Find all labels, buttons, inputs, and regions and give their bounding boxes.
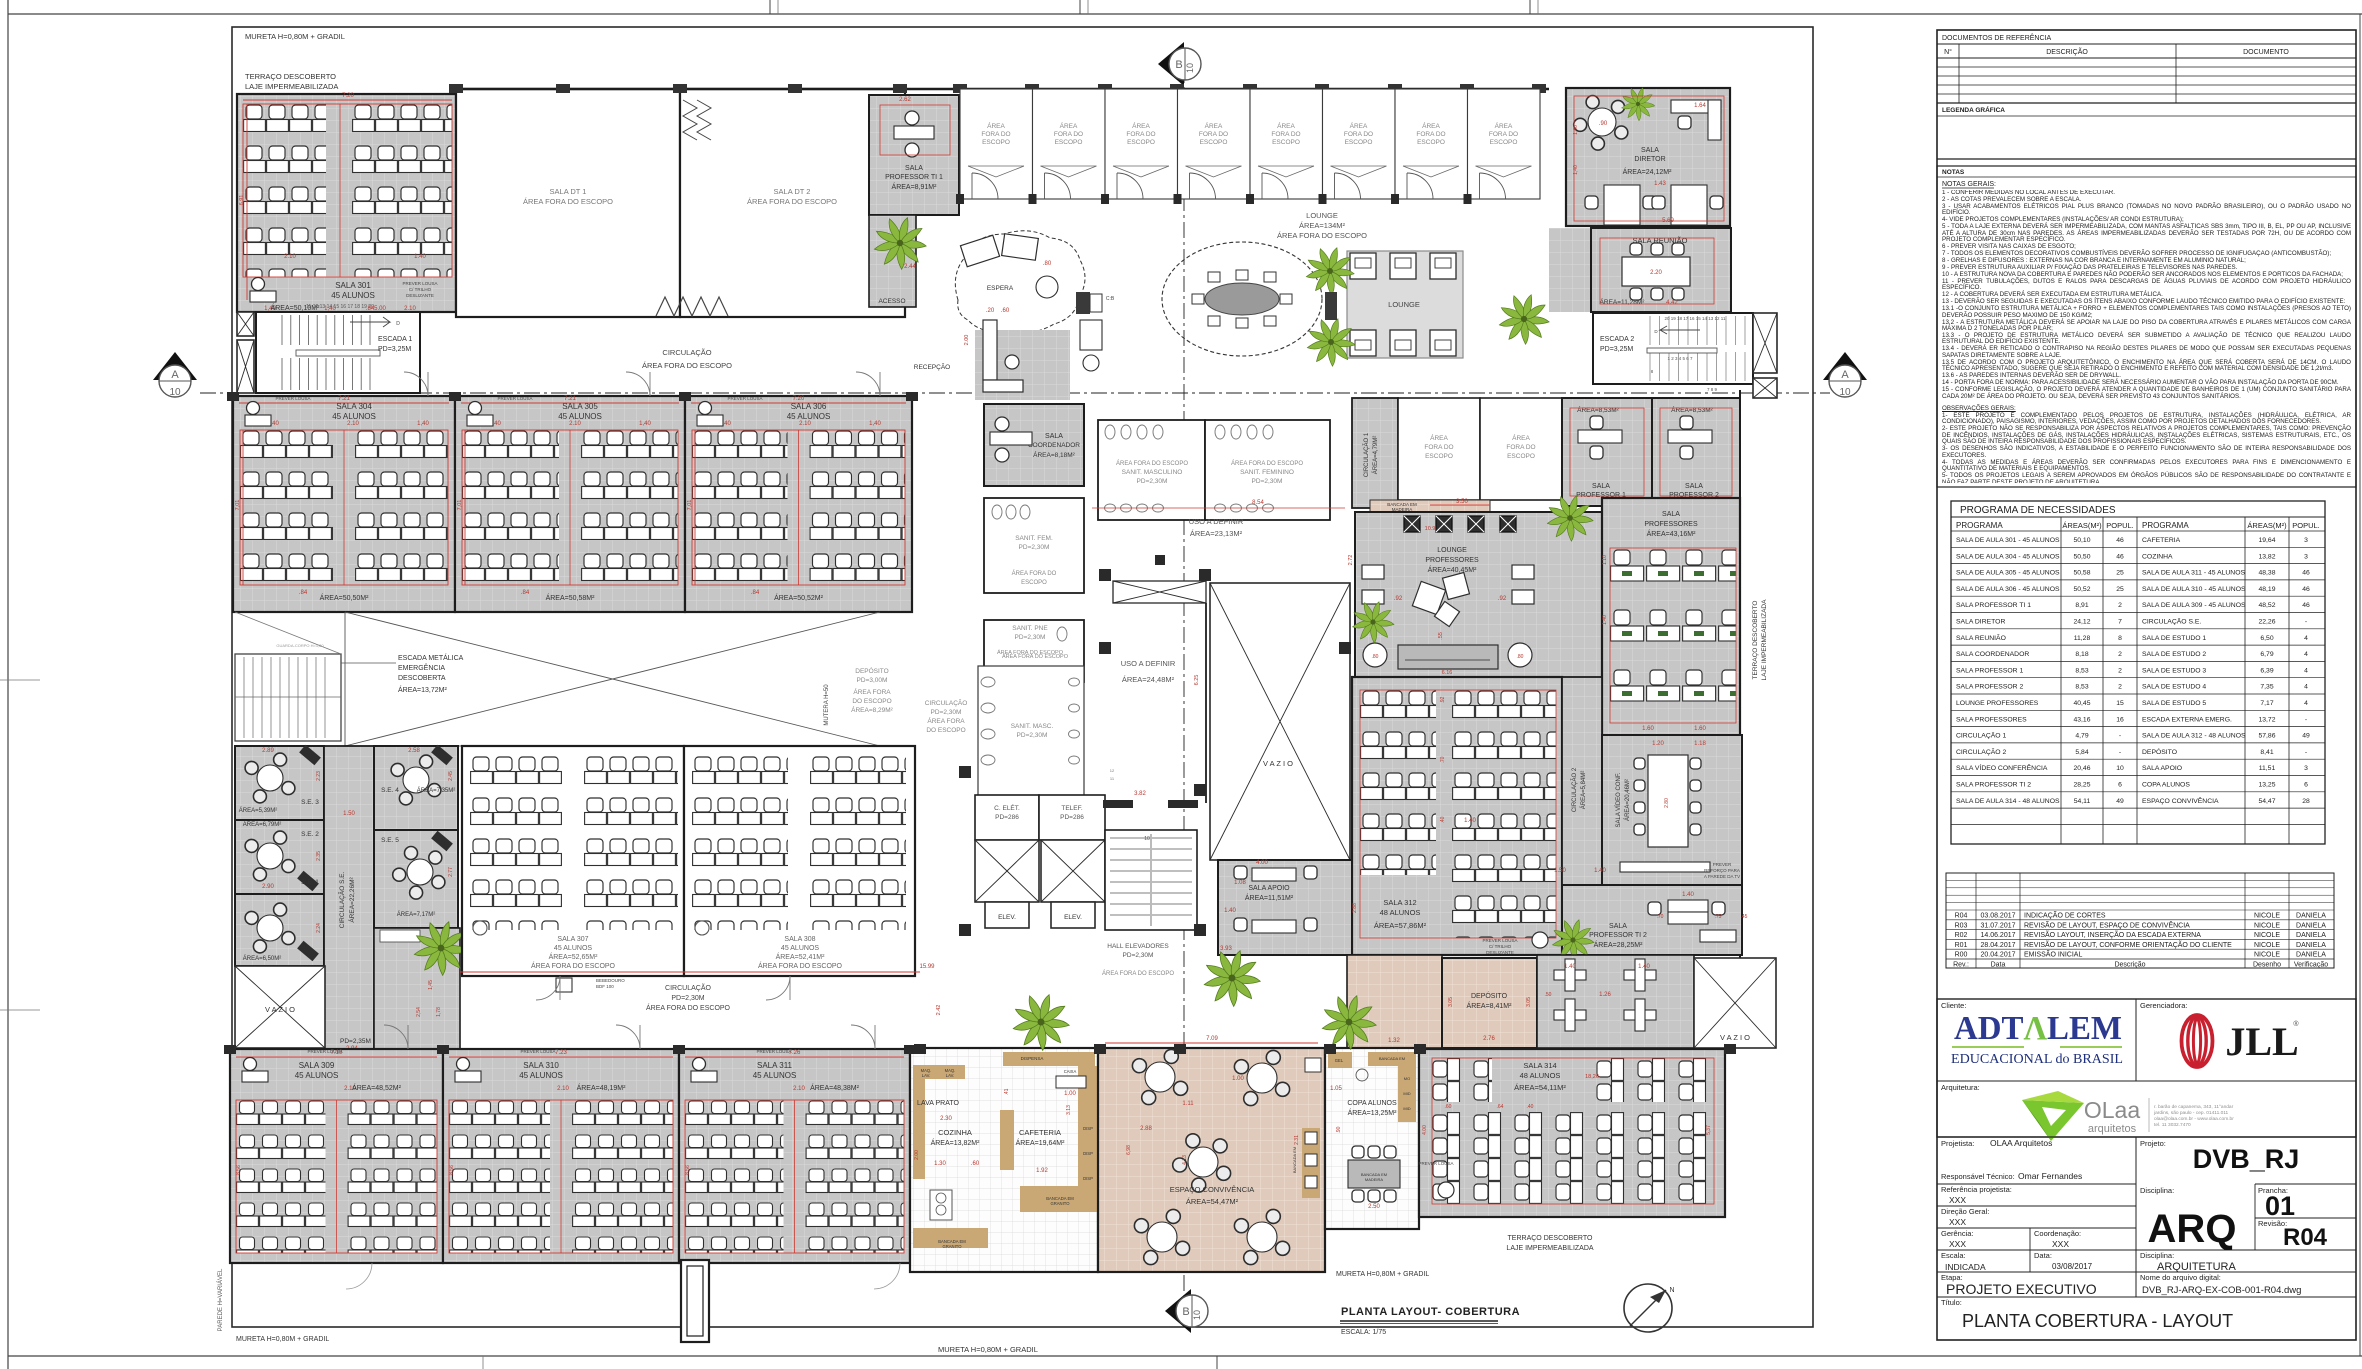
svg-text:MUTERA H=50: MUTERA H=50 bbox=[824, 684, 830, 726]
svg-text:ÁREA=28,25M²: ÁREA=28,25M² bbox=[1594, 940, 1643, 949]
svg-text:6: 6 bbox=[2304, 782, 2308, 789]
svg-text:20 19 18 17 16 15 14 13 12 11: 20 19 18 17 16 15 14 13 12 11 bbox=[1665, 316, 1726, 321]
svg-text:ÁREAS(M²): ÁREAS(M²) bbox=[2062, 521, 2102, 530]
svg-text:PD=2,30M: PD=2,30M bbox=[671, 995, 704, 1002]
svg-text:13,72: 13,72 bbox=[2258, 716, 2275, 723]
svg-text:CIRCULAÇÃO 1: CIRCULAÇÃO 1 bbox=[1956, 731, 2006, 740]
svg-text:LAJE IMPERMEABILIZADA: LAJE IMPERMEABILIZADA bbox=[1506, 1245, 1593, 1252]
svg-text:ELEV.: ELEV. bbox=[998, 914, 1016, 921]
svg-text:ÁREA: ÁREA bbox=[1132, 121, 1150, 130]
svg-text:3: 3 bbox=[2304, 553, 2308, 560]
svg-text:12: 12 bbox=[1110, 768, 1115, 773]
svg-text:PREVER LOUSA: PREVER LOUSA bbox=[1418, 1161, 1453, 1166]
svg-text:SANIT. FEMININO: SANIT. FEMININO bbox=[1240, 469, 1294, 476]
svg-text:DANIELA: DANIELA bbox=[2296, 932, 2326, 939]
svg-text:.50: .50 bbox=[1545, 992, 1552, 998]
svg-text:XXX: XXX bbox=[1949, 1239, 1966, 1249]
svg-text:ÁREA: ÁREA bbox=[1495, 121, 1513, 130]
svg-text:1.64: 1.64 bbox=[1694, 103, 1706, 109]
svg-text:S.E. 4: S.E. 4 bbox=[381, 787, 399, 794]
svg-text:2.31: 2.31 bbox=[1294, 1135, 1300, 1145]
svg-text:ÁREA=13,72M²: ÁREA=13,72M² bbox=[398, 685, 447, 694]
svg-text:COZINHA: COZINHA bbox=[2142, 553, 2173, 560]
svg-text:1,45: 1,45 bbox=[428, 980, 434, 990]
svg-text:43,16: 43,16 bbox=[2073, 716, 2090, 723]
svg-text:OLaa: OLaa bbox=[2084, 1097, 2140, 1123]
svg-text:SALA DE AULA 314 - 48 ALUNOS: SALA DE AULA 314 - 48 ALUNOS bbox=[1956, 798, 2060, 805]
svg-text:SALA APOIO: SALA APOIO bbox=[1248, 885, 1290, 892]
svg-text:-: - bbox=[2119, 733, 2121, 740]
svg-text:Omar Fernandes: Omar Fernandes bbox=[2018, 1171, 2082, 1181]
svg-text:SANIT. PNE: SANIT. PNE bbox=[1012, 625, 1048, 632]
svg-text:REVISÃO LAYOUT, INSERÇÃO DA ES: REVISÃO LAYOUT, INSERÇÃO DA ESCADA EXTER… bbox=[2024, 930, 2201, 939]
svg-text:MADEIRA: MADEIRA bbox=[1365, 1177, 1384, 1182]
svg-text:ESCADA EXTERNA EMERG.: ESCADA EXTERNA EMERG. bbox=[2142, 716, 2232, 723]
svg-text:PD=2,30M: PD=2,30M bbox=[1017, 732, 1048, 739]
svg-text:1.50: 1.50 bbox=[343, 811, 355, 817]
svg-text:5,84: 5,84 bbox=[2075, 749, 2088, 756]
svg-text:.55: .55 bbox=[1438, 632, 1444, 640]
svg-text:ESCOPO: ESCOPO bbox=[1055, 139, 1083, 146]
svg-text:3.82: 3.82 bbox=[1134, 791, 1146, 797]
svg-text:16: 16 bbox=[2116, 716, 2124, 723]
svg-text:ÁREA FORA DO ESCOPO: ÁREA FORA DO ESCOPO bbox=[523, 197, 613, 206]
svg-text:ÁREA FORA: ÁREA FORA bbox=[853, 687, 891, 696]
svg-text:ESCOPO: ESCOPO bbox=[1127, 139, 1155, 146]
svg-text:SALA DIRETOR: SALA DIRETOR bbox=[1956, 619, 2005, 626]
svg-text:18,26: 18,26 bbox=[1585, 1074, 1599, 1080]
svg-text:10: 10 bbox=[2116, 765, 2124, 772]
svg-text:BANCADA EM: BANCADA EM bbox=[1292, 1147, 1297, 1173]
svg-text:ESPAÇO CONVIVÊNCIA: ESPAÇO CONVIVÊNCIA bbox=[1170, 1185, 1254, 1194]
svg-text:8,56: 8,56 bbox=[685, 1165, 691, 1175]
svg-text:50,52: 50,52 bbox=[2073, 586, 2090, 593]
svg-text:PREVER LOUSA: PREVER LOUSA bbox=[307, 1049, 342, 1054]
svg-text:FORA DO: FORA DO bbox=[1506, 444, 1535, 451]
svg-text:DANIELA: DANIELA bbox=[2296, 952, 2326, 959]
svg-text:TERRAÇO DESCOBERTO: TERRAÇO DESCOBERTO bbox=[1752, 601, 1759, 680]
svg-text:7,35: 7,35 bbox=[2260, 684, 2273, 691]
svg-text:ÁREA FORA DO ESCOPO: ÁREA FORA DO ESCOPO bbox=[1231, 460, 1303, 467]
svg-text:1.40: 1.40 bbox=[1224, 908, 1236, 914]
svg-text:C. ELÉT.: C. ELÉT. bbox=[994, 803, 1020, 812]
svg-text:SALA 308: SALA 308 bbox=[784, 936, 815, 943]
svg-text:2: 2 bbox=[2118, 684, 2122, 691]
svg-text:XXX: XXX bbox=[1949, 1195, 1966, 1205]
svg-text:CAFETERIA: CAFETERIA bbox=[1019, 1128, 1061, 1137]
svg-text:5.69: 5.69 bbox=[1662, 218, 1674, 224]
svg-text:28,25: 28,25 bbox=[2073, 782, 2090, 789]
svg-text:11,51: 11,51 bbox=[2259, 765, 2276, 772]
svg-text:31.07.2017: 31.07.2017 bbox=[1980, 922, 2015, 929]
svg-text:MURETA H=0,80M + GRADIL: MURETA H=0,80M + GRADIL bbox=[236, 1336, 329, 1343]
svg-text:DISP: DISP bbox=[1083, 1151, 1093, 1156]
svg-text:CIRCULAÇÃO S.E.: CIRCULAÇÃO S.E. bbox=[337, 871, 346, 928]
svg-text:ARQUITETURA: ARQUITETURA bbox=[2157, 1261, 2237, 1273]
svg-text:V A Z I O: V A Z I O bbox=[1263, 759, 1293, 768]
svg-text:ÁREA: ÁREA bbox=[1422, 121, 1440, 130]
svg-text:2: 2 bbox=[2118, 667, 2122, 674]
svg-text:48,38: 48,38 bbox=[2258, 570, 2275, 577]
svg-text:LAJE IMPERMEABILIZADA: LAJE IMPERMEABILIZADA bbox=[1761, 599, 1768, 681]
svg-text:COZINHA: COZINHA bbox=[938, 1128, 972, 1137]
svg-text:ÁREA FORA DO ESCOPO: ÁREA FORA DO ESCOPO bbox=[642, 361, 732, 370]
svg-text:SALA 304: SALA 304 bbox=[336, 402, 372, 411]
svg-text:7,17: 7,17 bbox=[2260, 700, 2273, 707]
svg-text:REFORÇO PARA: REFORÇO PARA bbox=[1704, 868, 1740, 873]
svg-text:SALA APOIO: SALA APOIO bbox=[2142, 765, 2182, 772]
svg-text:50,50: 50,50 bbox=[2073, 553, 2090, 560]
svg-text:25: 25 bbox=[2116, 586, 2124, 593]
svg-text:A: A bbox=[1841, 369, 1849, 381]
svg-text:ESCADA 2: ESCADA 2 bbox=[1600, 336, 1634, 343]
svg-text:Nome do arquivo digital:: Nome do arquivo digital: bbox=[2140, 1273, 2221, 1282]
svg-text:2.90: 2.90 bbox=[262, 884, 274, 890]
svg-text:EDUCACIONAL do BRASIL: EDUCACIONAL do BRASIL bbox=[1951, 1052, 2123, 1067]
svg-text:PREVER LOUSA: PREVER LOUSA bbox=[520, 1049, 555, 1054]
svg-text:ÁREA=50,50M²: ÁREA=50,50M² bbox=[320, 593, 369, 602]
svg-text:03/08/2017: 03/08/2017 bbox=[2052, 1262, 2093, 1271]
svg-text:ÁREA=22,26M²: ÁREA=22,26M² bbox=[347, 876, 356, 922]
svg-text:ESCALA: 1/75: ESCALA: 1/75 bbox=[1341, 1329, 1386, 1336]
svg-text:SALA VÍDEO CONFERÊNCIA: SALA VÍDEO CONFERÊNCIA bbox=[1956, 763, 2048, 772]
svg-text:FORA DO: FORA DO bbox=[1344, 131, 1373, 138]
svg-text:.40: .40 bbox=[1527, 1104, 1534, 1110]
svg-text:1.40: 1.40 bbox=[1594, 868, 1606, 874]
svg-text:.90: .90 bbox=[1336, 1126, 1342, 1133]
svg-text:SALA DE AULA 311 - 45 ALUNOS: SALA DE AULA 311 - 45 ALUNOS bbox=[2142, 570, 2245, 577]
svg-text:2.10: 2.10 bbox=[799, 421, 811, 427]
svg-text:PD=286: PD=286 bbox=[995, 814, 1019, 821]
svg-text:SALA DE AULA 306 - 45 ALUNOS: SALA DE AULA 306 - 45 ALUNOS bbox=[1956, 586, 2060, 593]
svg-text:MURETA H=0,80M + GRADIL: MURETA H=0,80M + GRADIL bbox=[938, 1345, 1038, 1354]
svg-text:.80: .80 bbox=[1043, 261, 1052, 267]
svg-text:Referência projetista:: Referência projetista: bbox=[1941, 1185, 2012, 1194]
svg-text:50,58: 50,58 bbox=[2073, 570, 2090, 577]
svg-text:BEBEDOURO: BEBEDOURO bbox=[596, 978, 625, 983]
svg-text:1.60: 1.60 bbox=[1694, 726, 1706, 732]
svg-text:1.50: 1.50 bbox=[1554, 868, 1566, 874]
svg-text:.92: .92 bbox=[1440, 696, 1446, 703]
svg-text:.41: .41 bbox=[1004, 1088, 1010, 1095]
svg-text:SALA 314: SALA 314 bbox=[1523, 1061, 1556, 1070]
svg-text:B: B bbox=[1182, 1306, 1189, 1318]
svg-text:ÁREA=50,52M²: ÁREA=50,52M² bbox=[774, 593, 823, 602]
svg-text:8,53: 8,53 bbox=[2075, 667, 2088, 674]
svg-text:10: 10 bbox=[1144, 836, 1150, 842]
svg-text:PREVER LOUSA: PREVER LOUSA bbox=[402, 281, 437, 286]
svg-text:GRANITO: GRANITO bbox=[1050, 1201, 1070, 1206]
svg-text:ÁREA FORA DO ESCOPO: ÁREA FORA DO ESCOPO bbox=[531, 961, 616, 970]
svg-text:2.00: 2.00 bbox=[914, 1150, 920, 1160]
svg-text:COPA ALUNOS: COPA ALUNOS bbox=[2142, 782, 2190, 789]
svg-text:ÁREA=52,41M²: ÁREA=52,41M² bbox=[776, 952, 825, 961]
svg-text:ÁREA: ÁREA bbox=[1350, 121, 1368, 130]
svg-text:2.30: 2.30 bbox=[940, 1116, 952, 1122]
svg-text:SALA DE ESTUDO 4: SALA DE ESTUDO 4 bbox=[2142, 684, 2206, 691]
svg-text:.40: .40 bbox=[1440, 816, 1446, 823]
svg-text:Disciplina:: Disciplina: bbox=[2140, 1186, 2174, 1195]
svg-text:LEGENDA GRÁFICA: LEGENDA GRÁFICA bbox=[1942, 105, 2005, 114]
svg-text:PLANTA LAYOUT- COBERTURA: PLANTA LAYOUT- COBERTURA bbox=[1341, 1306, 1520, 1318]
svg-text:2.23: 2.23 bbox=[316, 771, 322, 781]
svg-text:GEL: GEL bbox=[1335, 1058, 1344, 1063]
svg-text:1.26: 1.26 bbox=[1599, 992, 1611, 998]
svg-text:2.10: 2.10 bbox=[557, 1086, 569, 1092]
svg-text:S.E. 2: S.E. 2 bbox=[301, 831, 319, 838]
svg-text:SALA 309: SALA 309 bbox=[299, 1061, 335, 1070]
svg-text:1,40: 1,40 bbox=[869, 421, 881, 427]
svg-text:NICOLE: NICOLE bbox=[2254, 942, 2280, 949]
svg-text:DEPÓSITO: DEPÓSITO bbox=[1471, 991, 1508, 1000]
svg-text:ÁREA=48,52M²: ÁREA=48,52M² bbox=[352, 1083, 401, 1092]
svg-text:SALA: SALA bbox=[1045, 433, 1063, 440]
svg-text:1.05: 1.05 bbox=[1330, 1086, 1342, 1092]
svg-text:4.13: 4.13 bbox=[1182, 1155, 1188, 1165]
svg-text:SALA PROFESSOR TI 2: SALA PROFESSOR TI 2 bbox=[1956, 782, 2031, 789]
svg-text:SALA 312: SALA 312 bbox=[1383, 898, 1416, 907]
svg-text:2.10: 2.10 bbox=[347, 421, 359, 427]
svg-text:.64: .64 bbox=[1497, 1104, 1504, 1110]
svg-text:6,98: 6,98 bbox=[1126, 1145, 1132, 1155]
svg-text:LOUNGE: LOUNGE bbox=[1306, 211, 1338, 220]
svg-text:DISP: DISP bbox=[1083, 1126, 1093, 1131]
svg-text:28.04.2017: 28.04.2017 bbox=[1980, 942, 2015, 949]
svg-text:8.54: 8.54 bbox=[1252, 500, 1264, 506]
svg-text:Escala:: Escala: bbox=[1941, 1251, 1966, 1260]
svg-text:R04: R04 bbox=[1955, 913, 1968, 920]
svg-text:1,40: 1,40 bbox=[639, 421, 651, 427]
svg-text:Rev.:: Rev.: bbox=[1953, 962, 1969, 969]
svg-text:-: - bbox=[2305, 619, 2307, 626]
svg-text:ESCOPO: ESCOPO bbox=[1417, 139, 1445, 146]
svg-text:LAJE IMPERMEABILIZADA: LAJE IMPERMEABILIZADA bbox=[245, 82, 338, 91]
svg-text:.80: .80 bbox=[1517, 654, 1524, 660]
svg-text:2.10: 2.10 bbox=[793, 1086, 805, 1092]
svg-text:ÁREA: ÁREA bbox=[1277, 121, 1295, 130]
svg-text:PD=2,30M: PD=2,30M bbox=[1019, 544, 1050, 551]
svg-text:ESCOPO: ESCOPO bbox=[1345, 139, 1373, 146]
svg-text:57,86: 57,86 bbox=[2258, 733, 2275, 740]
svg-text:FORA DO: FORA DO bbox=[1416, 131, 1445, 138]
svg-text:1.60: 1.60 bbox=[1642, 726, 1654, 732]
svg-text:46: 46 bbox=[2302, 602, 2310, 609]
svg-text:4: 4 bbox=[2304, 667, 2308, 674]
svg-text:SALA DE ESTUDO 5: SALA DE ESTUDO 5 bbox=[2142, 700, 2206, 707]
svg-text:1,40: 1,40 bbox=[417, 421, 429, 427]
svg-text:PAREDE H=VARIÁVEL: PAREDE H=VARIÁVEL bbox=[217, 1268, 224, 1331]
svg-text:45 ALUNOS: 45 ALUNOS bbox=[554, 945, 592, 952]
svg-text:DEPÓSITO: DEPÓSITO bbox=[2142, 747, 2177, 756]
svg-text:46: 46 bbox=[2302, 570, 2310, 577]
svg-text:Disciplina:: Disciplina: bbox=[2140, 1251, 2174, 1260]
svg-text:ÁREA=7,17M²: ÁREA=7,17M² bbox=[397, 911, 436, 918]
svg-text:46: 46 bbox=[2116, 553, 2124, 560]
svg-text:PREVER LOUSA: PREVER LOUSA bbox=[275, 396, 310, 401]
svg-text:1.32: 1.32 bbox=[1388, 1038, 1400, 1044]
svg-text:ACESSO: ACESSO bbox=[878, 298, 905, 305]
svg-text:ÁREA=23,13M²: ÁREA=23,13M² bbox=[1190, 529, 1243, 538]
svg-text:6,50: 6,50 bbox=[2260, 635, 2273, 642]
svg-text:10: 10 bbox=[1185, 63, 1195, 73]
svg-text:SALA DT 1: SALA DT 1 bbox=[550, 187, 587, 196]
svg-text:SALA DE AULA 305 - 45 ALUNOS: SALA DE AULA 305 - 45 ALUNOS bbox=[1956, 570, 2060, 577]
svg-text:SALA DE ESTUDO 2: SALA DE ESTUDO 2 bbox=[2142, 651, 2206, 658]
svg-text:ÁREA=54,47M²: ÁREA=54,47M² bbox=[1186, 1197, 1239, 1206]
svg-text:ÁREA=8,91M²: ÁREA=8,91M² bbox=[892, 182, 938, 191]
svg-text:4: 4 bbox=[2304, 651, 2308, 658]
svg-text:2.50: 2.50 bbox=[1368, 1204, 1380, 1210]
svg-text:4,79: 4,79 bbox=[2075, 733, 2088, 740]
svg-text:7,01: 7,01 bbox=[687, 500, 693, 511]
svg-text:24,12: 24,12 bbox=[2073, 619, 2090, 626]
svg-text:2.45: 2.45 bbox=[448, 771, 454, 781]
svg-text:8: 8 bbox=[2118, 635, 2122, 642]
svg-text:DEPÓSITO: DEPÓSITO bbox=[855, 666, 888, 675]
svg-text:.70: .70 bbox=[1657, 914, 1664, 920]
svg-text:.20: .20 bbox=[986, 308, 995, 314]
svg-text:ÁREA=5,39M²: ÁREA=5,39M² bbox=[239, 807, 278, 814]
svg-text:28: 28 bbox=[2302, 798, 2310, 805]
svg-text:PLANTA COBERTURA - LAYOUT: PLANTA COBERTURA - LAYOUT bbox=[1962, 1311, 2233, 1331]
svg-text:ÁREA FORA DO: ÁREA FORA DO bbox=[1012, 570, 1057, 577]
svg-text:11 12 13 14 15 16 17 18 19 20: 11 12 13 14 15 16 17 18 19 20 bbox=[306, 304, 374, 310]
svg-text:45 ALUNOS: 45 ALUNOS bbox=[787, 412, 831, 421]
svg-text:8,91: 8,91 bbox=[2075, 602, 2088, 609]
svg-text:6.16: 6.16 bbox=[1442, 670, 1453, 676]
svg-text:PROFESSORES: PROFESSORES bbox=[1425, 557, 1479, 564]
svg-text:HALL ELEVADORES: HALL ELEVADORES bbox=[1107, 943, 1169, 950]
svg-text:PD=3,00M: PD=3,00M bbox=[857, 677, 888, 684]
svg-text:PROFESSOR TI 2: PROFESSOR TI 2 bbox=[1589, 932, 1647, 939]
svg-text:OLAA Arquitetos: OLAA Arquitetos bbox=[1990, 1138, 2052, 1148]
svg-text:-: - bbox=[2119, 749, 2121, 756]
svg-text:1.40: 1.40 bbox=[1682, 892, 1694, 898]
svg-text:LOUNGE PROFESSORES: LOUNGE PROFESSORES bbox=[1956, 700, 2039, 707]
svg-text:2.00: 2.00 bbox=[964, 335, 970, 346]
svg-text:1.40: 1.40 bbox=[1564, 964, 1576, 970]
svg-text:.84: .84 bbox=[751, 590, 760, 596]
svg-text:CAIXA: CAIXA bbox=[1064, 1069, 1077, 1074]
svg-text:ÁREA: ÁREA bbox=[1430, 433, 1448, 442]
svg-text:ÁREA=13,82M²: ÁREA=13,82M² bbox=[931, 1138, 980, 1147]
svg-text:LAV.: LAV. bbox=[946, 1073, 954, 1078]
svg-text:45 ALUNOS: 45 ALUNOS bbox=[519, 1071, 563, 1080]
svg-text:DOCUMENTOS DE REFERÊNCIA: DOCUMENTOS DE REFERÊNCIA bbox=[1942, 33, 2051, 42]
svg-text:5,37: 5,37 bbox=[1706, 1125, 1712, 1135]
svg-text:48,52: 48,52 bbox=[2258, 602, 2275, 609]
svg-text:4: 4 bbox=[2304, 635, 2308, 642]
svg-text:ESCOPO: ESCOPO bbox=[1021, 580, 1047, 586]
svg-text:N: N bbox=[1669, 1287, 1674, 1294]
svg-text:SALA 301: SALA 301 bbox=[335, 281, 371, 290]
svg-text:PROGRAMA: PROGRAMA bbox=[1956, 521, 2003, 530]
svg-text:DANIELA: DANIELA bbox=[2296, 922, 2326, 929]
svg-text:ÁREA FORA DO ESCOPO: ÁREA FORA DO ESCOPO bbox=[1102, 970, 1174, 977]
svg-text:1.10: 1.10 bbox=[1602, 555, 1608, 565]
svg-text:ÁREA=19,64M²: ÁREA=19,64M² bbox=[1016, 1138, 1065, 1147]
svg-text:DESCRIÇÃO: DESCRIÇÃO bbox=[2046, 47, 2088, 56]
svg-text:FORA DO: FORA DO bbox=[1489, 131, 1518, 138]
svg-text:4: 4 bbox=[2304, 700, 2308, 707]
svg-text:ÁREA=11,51M²: ÁREA=11,51M² bbox=[1245, 893, 1294, 902]
svg-text:TELEF.: TELEF. bbox=[1061, 805, 1083, 812]
svg-text:B: B bbox=[1175, 59, 1182, 71]
svg-text:ÁREA=8,18M²: ÁREA=8,18M² bbox=[1033, 450, 1076, 459]
svg-text:7,01: 7,01 bbox=[457, 500, 463, 511]
svg-text:LOUNGE: LOUNGE bbox=[1437, 547, 1467, 554]
svg-text:PD=3,25M: PD=3,25M bbox=[1600, 346, 1633, 353]
svg-text:1.92: 1.92 bbox=[1036, 1168, 1048, 1174]
svg-text:1 2 3 4 5 6 7: 1 2 3 4 5 6 7 bbox=[1667, 356, 1693, 361]
svg-text:DANIELA: DANIELA bbox=[2296, 942, 2326, 949]
svg-text:4.00: 4.00 bbox=[1422, 1125, 1428, 1135]
svg-text:SALA: SALA bbox=[1609, 923, 1627, 930]
svg-text:49: 49 bbox=[2116, 798, 2124, 805]
svg-text:S.E. 1: S.E. 1 bbox=[301, 879, 319, 886]
svg-text:2.88: 2.88 bbox=[1140, 1126, 1152, 1132]
svg-text:SALA DE AULA 310 - 45 ALUNOS: SALA DE AULA 310 - 45 ALUNOS bbox=[2142, 586, 2246, 593]
svg-text:ÁREA=57,86M²: ÁREA=57,86M² bbox=[1374, 921, 1427, 930]
svg-text:1.11: 1.11 bbox=[1182, 1101, 1194, 1107]
svg-text:PROFESSORES: PROFESSORES bbox=[1644, 521, 1698, 528]
svg-text:2.89: 2.89 bbox=[262, 748, 274, 754]
svg-text:1.08: 1.08 bbox=[1234, 880, 1246, 886]
svg-text:FORA DO: FORA DO bbox=[1054, 131, 1083, 138]
svg-text:3.93: 3.93 bbox=[1220, 946, 1232, 952]
svg-text:DESLIZANTE: DESLIZANTE bbox=[1486, 950, 1514, 955]
svg-text:3: 3 bbox=[2304, 765, 2308, 772]
svg-text:®: ® bbox=[2293, 1020, 2299, 1028]
svg-text:8,53: 8,53 bbox=[2075, 684, 2088, 691]
svg-text:10: 10 bbox=[1839, 387, 1851, 398]
svg-text:FORA DO: FORA DO bbox=[981, 131, 1010, 138]
svg-text:2.20: 2.20 bbox=[1650, 270, 1662, 276]
svg-text:2.58: 2.58 bbox=[408, 748, 420, 754]
svg-text:DIRETOR: DIRETOR bbox=[1634, 156, 1665, 163]
svg-text:SALA PROFESSOR TI 1: SALA PROFESSOR TI 1 bbox=[1956, 602, 2031, 609]
svg-text:R04: R04 bbox=[2283, 1224, 2328, 1251]
svg-text:6.25: 6.25 bbox=[1194, 675, 1200, 686]
svg-text:CAFETERIA: CAFETERIA bbox=[2142, 537, 2181, 544]
svg-text:SALA: SALA bbox=[1662, 511, 1680, 518]
svg-text:ESCADA 1: ESCADA 1 bbox=[378, 336, 412, 343]
svg-text:2.24: 2.24 bbox=[316, 923, 322, 933]
svg-text:.60: .60 bbox=[971, 1161, 980, 1167]
svg-text:INDICAÇÃO DE CORTES: INDICAÇÃO DE CORTES bbox=[2024, 911, 2106, 920]
svg-text:GUARDA-CORPO H=1,20: GUARDA-CORPO H=1,20 bbox=[276, 643, 324, 648]
svg-text:FORA DO: FORA DO bbox=[1199, 131, 1228, 138]
svg-text:SALA DE AULA 304 - 45 ALUNOS: SALA DE AULA 304 - 45 ALUNOS bbox=[1956, 553, 2060, 560]
svg-text:ÁREA=5,84M²: ÁREA=5,84M² bbox=[1580, 771, 1587, 810]
svg-text:DVB_RJ: DVB_RJ bbox=[2193, 1144, 2300, 1174]
svg-text:7: 7 bbox=[2118, 619, 2122, 626]
svg-text:DANIELA: DANIELA bbox=[2296, 913, 2326, 920]
svg-text:10: 10 bbox=[1192, 1310, 1202, 1320]
svg-text:2.77: 2.77 bbox=[448, 867, 454, 877]
svg-text:.84: .84 bbox=[299, 590, 308, 596]
svg-text:ÁREA=50,58M²: ÁREA=50,58M² bbox=[546, 593, 595, 602]
svg-text:INDICADA: INDICADA bbox=[1945, 1262, 1986, 1272]
svg-text:ARQ: ARQ bbox=[2148, 1207, 2237, 1251]
svg-text:3.05: 3.05 bbox=[1526, 997, 1532, 1007]
svg-text:PREVER: PREVER bbox=[1713, 862, 1732, 867]
svg-text:SALA: SALA bbox=[1685, 483, 1703, 490]
svg-text:54,47: 54,47 bbox=[2258, 798, 2275, 805]
svg-text:ÁREA=20,46M²: ÁREA=20,46M² bbox=[1624, 779, 1631, 821]
svg-text:ÁREA=11,28M²: ÁREA=11,28M² bbox=[1600, 297, 1646, 306]
svg-text:7,01: 7,01 bbox=[235, 500, 241, 511]
